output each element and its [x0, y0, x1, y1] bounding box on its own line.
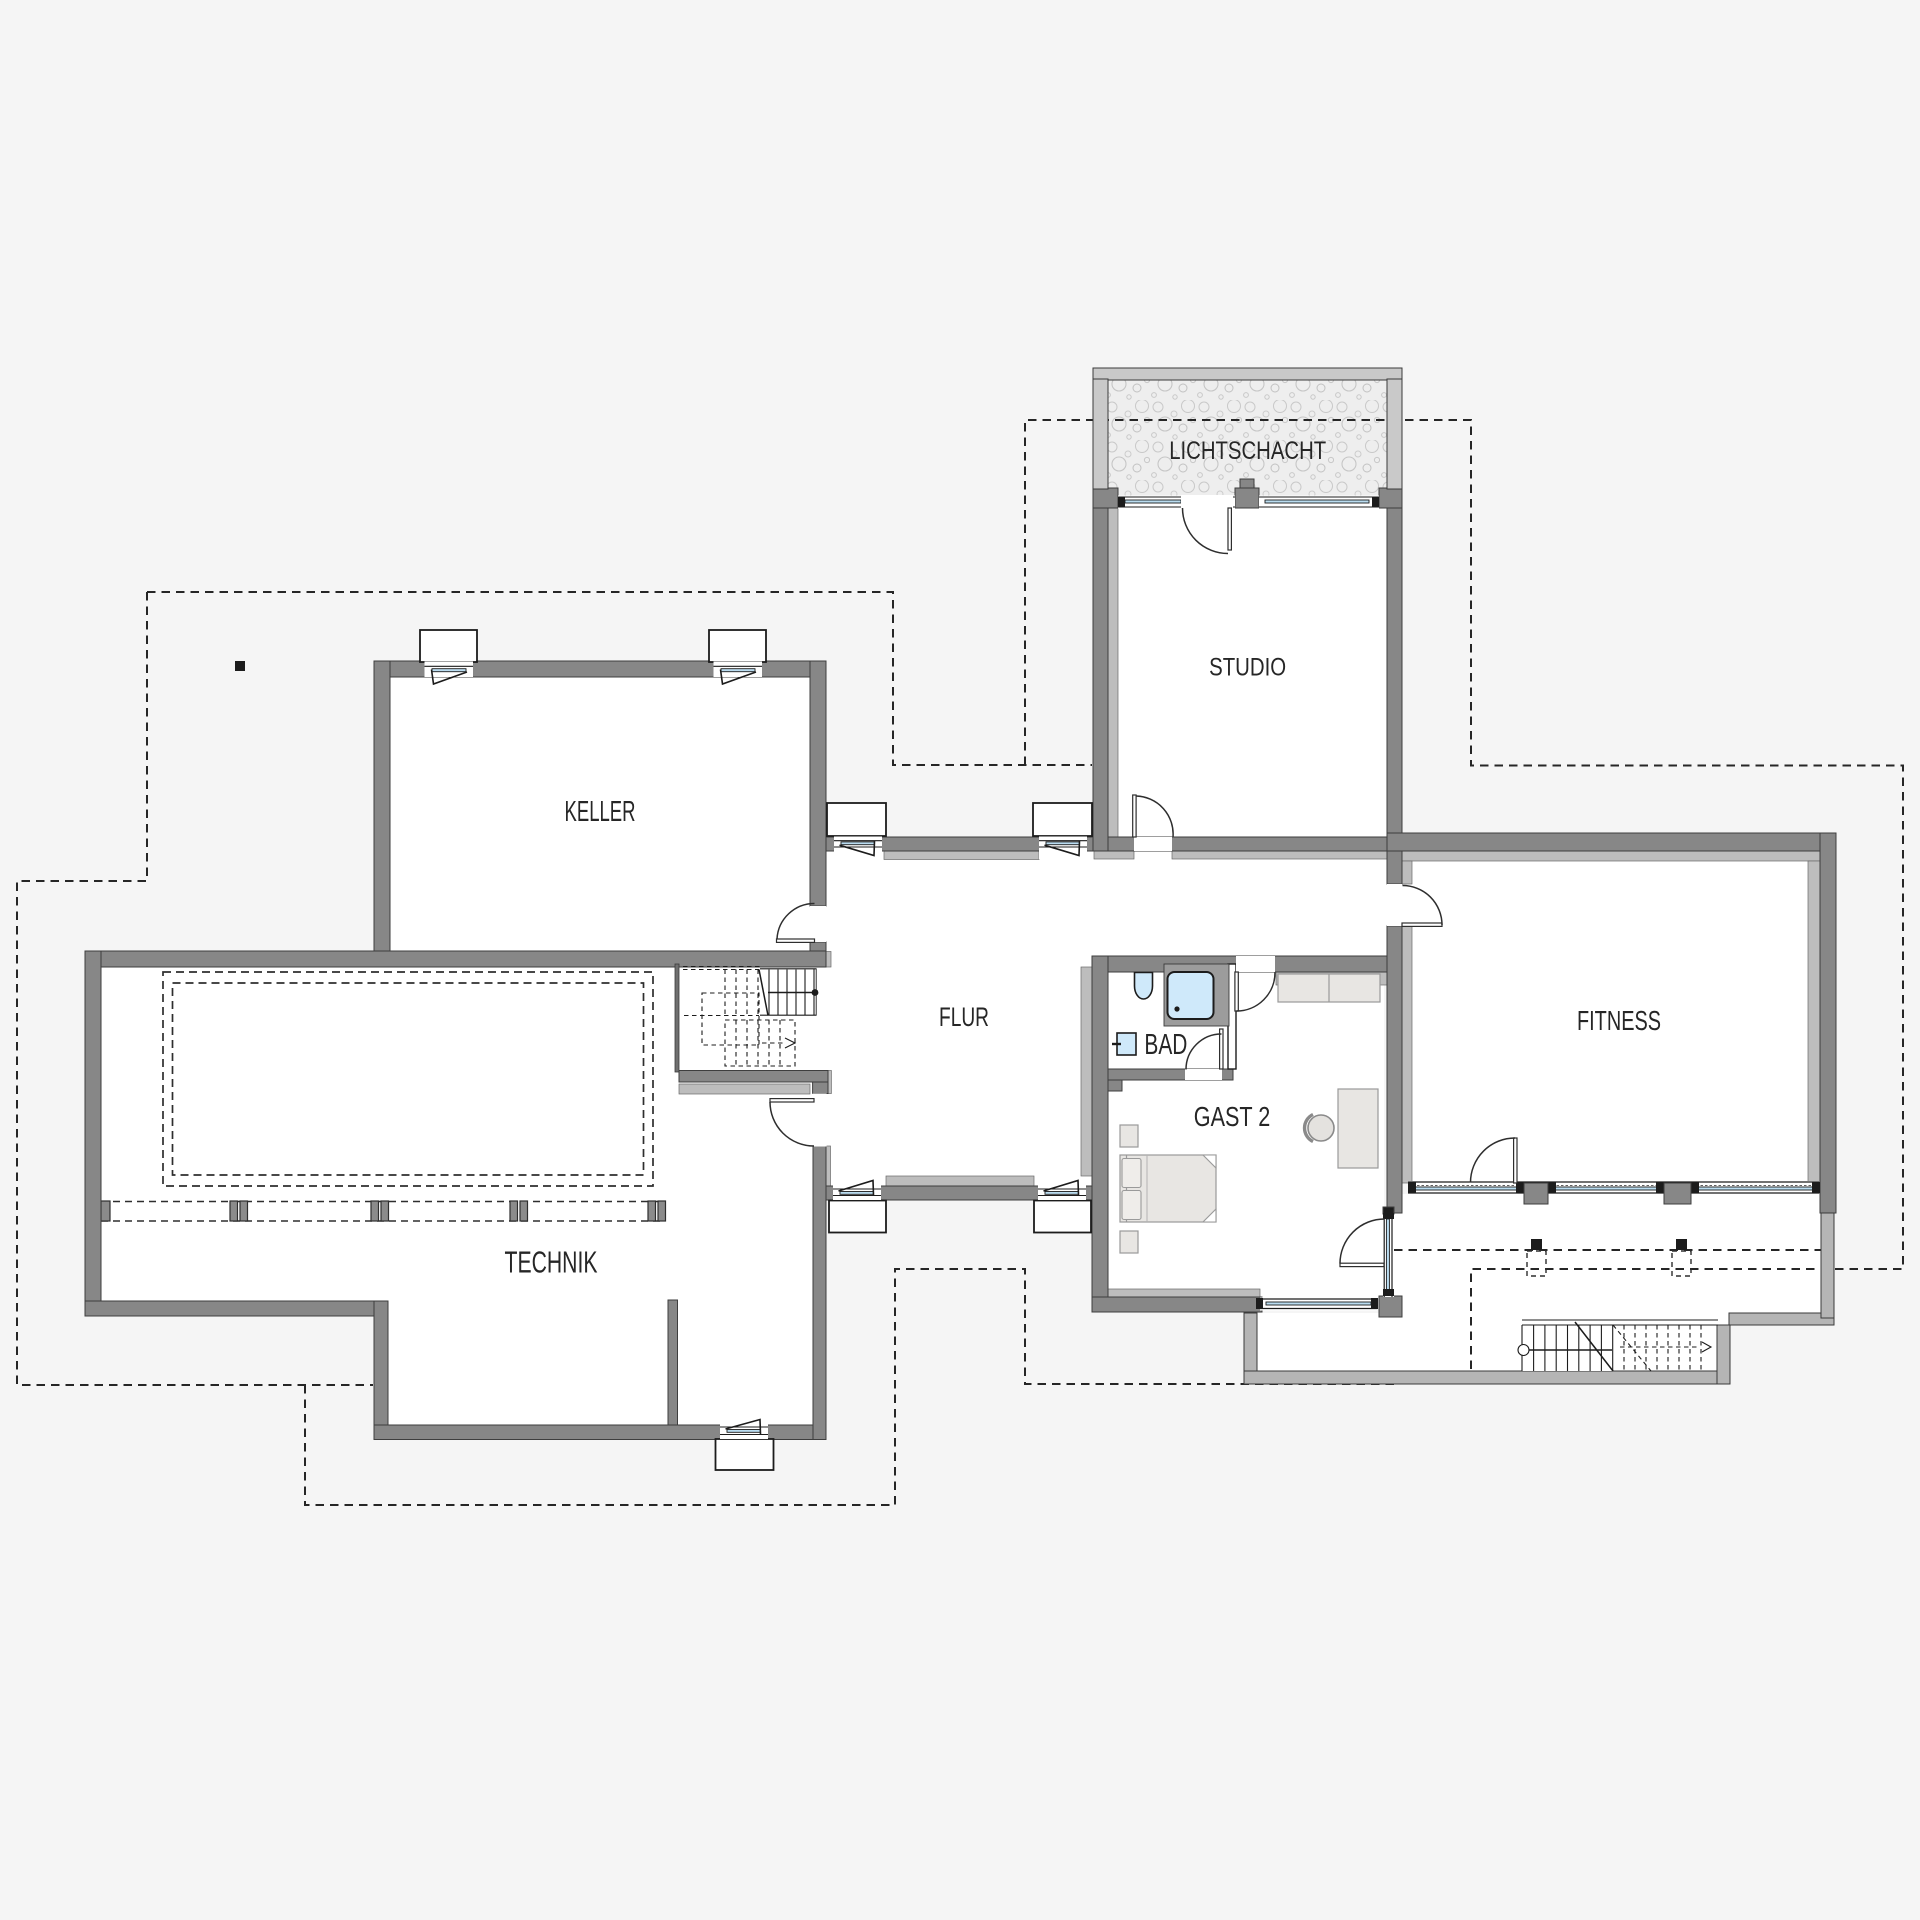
- svg-text:TECHNIK: TECHNIK: [505, 1245, 598, 1280]
- svg-text:GAST 2: GAST 2: [1194, 1101, 1271, 1132]
- svg-text:FITNESS: FITNESS: [1577, 1005, 1661, 1036]
- svg-text:STUDIO: STUDIO: [1209, 654, 1286, 682]
- svg-text:FLUR: FLUR: [939, 1002, 989, 1032]
- svg-text:BAD: BAD: [1144, 1029, 1187, 1061]
- svg-text:KELLER: KELLER: [565, 796, 636, 828]
- svg-text:LICHTSCHACHT: LICHTSCHACHT: [1169, 437, 1326, 465]
